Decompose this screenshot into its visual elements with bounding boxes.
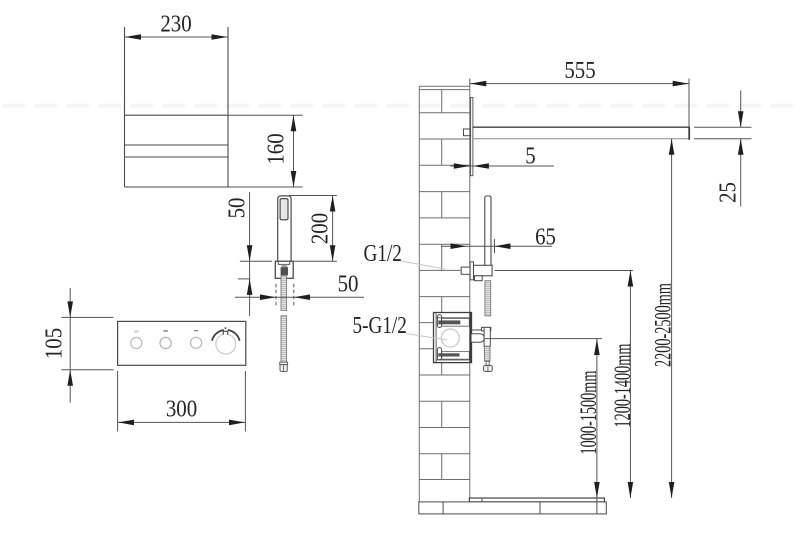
svg-text:555: 555 xyxy=(564,57,595,84)
svg-text:105: 105 xyxy=(40,328,67,359)
svg-text:50: 50 xyxy=(338,270,359,297)
svg-text:5-G1/2: 5-G1/2 xyxy=(353,312,407,339)
svg-text:50: 50 xyxy=(223,198,250,219)
svg-text:1000-1500mm: 1000-1500mm xyxy=(577,370,602,454)
svg-text:5: 5 xyxy=(525,142,535,169)
svg-text:65: 65 xyxy=(535,223,556,250)
svg-text:230: 230 xyxy=(160,10,191,37)
svg-text:1200-1400mm: 1200-1400mm xyxy=(611,343,636,427)
svg-text:2200-2500mm: 2200-2500mm xyxy=(651,283,676,367)
svg-text:200: 200 xyxy=(306,213,333,244)
svg-text:160: 160 xyxy=(262,133,289,164)
svg-text:G1/2: G1/2 xyxy=(364,240,402,267)
svg-text:300: 300 xyxy=(166,395,197,422)
svg-text:25: 25 xyxy=(714,182,741,203)
